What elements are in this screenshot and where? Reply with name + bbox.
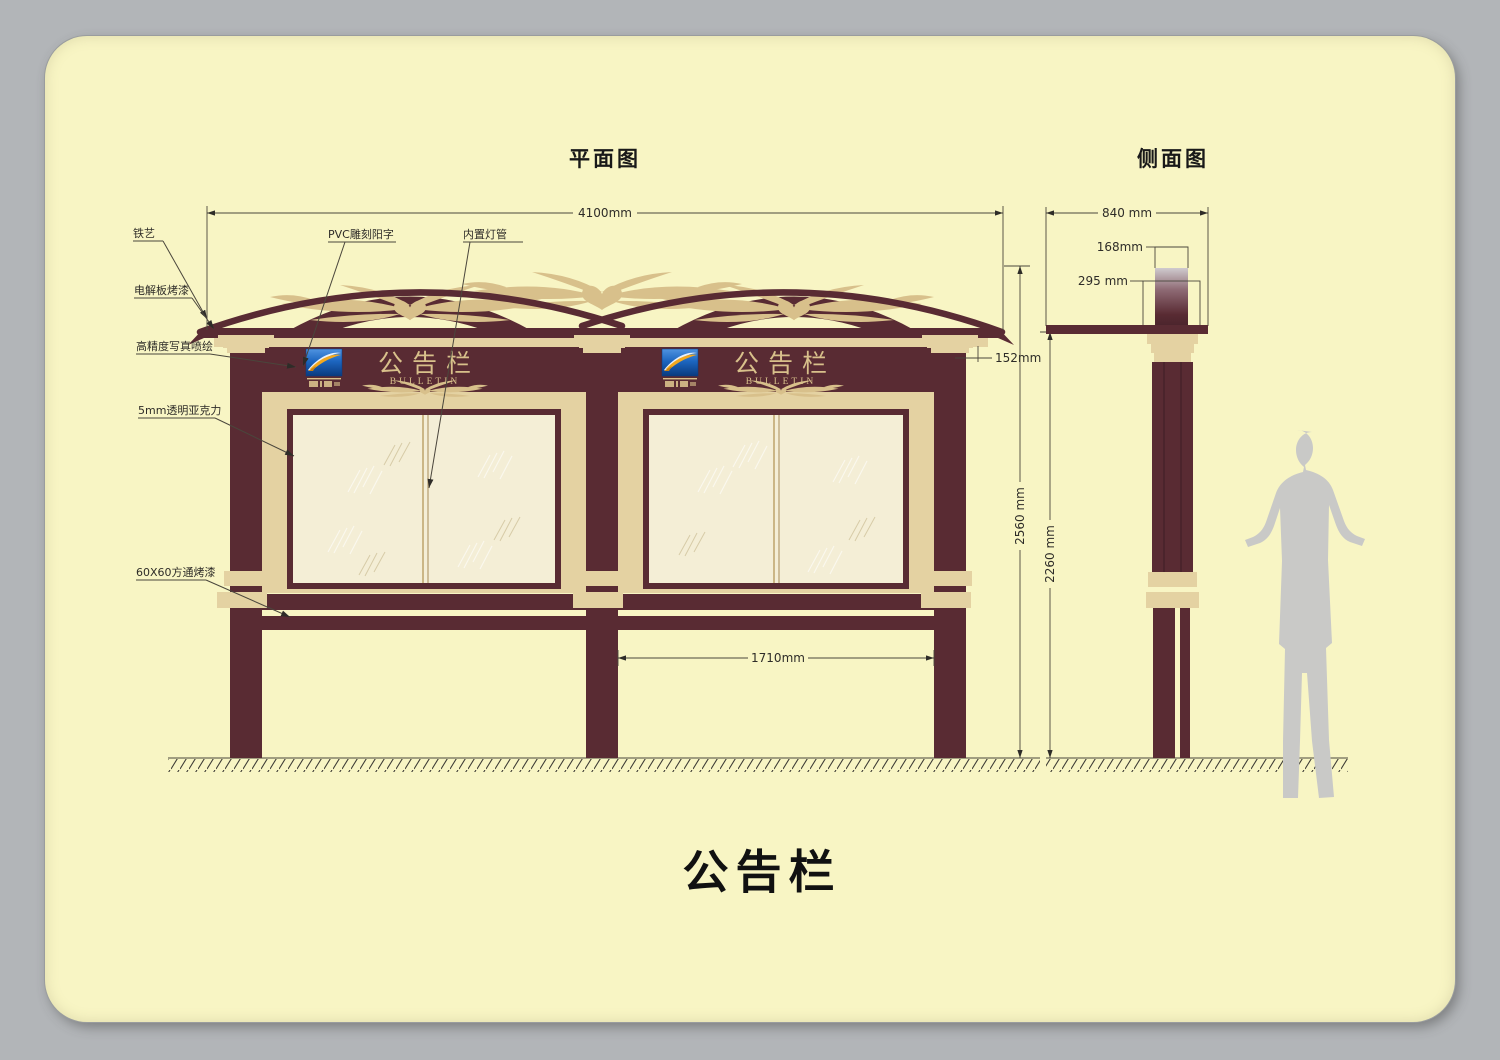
sheet-caption: 公告栏 — [683, 845, 842, 899]
human-silhouette — [1245, 430, 1365, 798]
dim-overall-height: 2560 mm — [1013, 487, 1027, 545]
svg-text:5mm透明亚克力: 5mm透明亚克力 — [138, 404, 221, 417]
dim-header-height: 152mm — [995, 351, 1041, 365]
side-view-title: 侧面图 — [1137, 147, 1209, 171]
board-title-cn: 公告栏 — [378, 350, 480, 378]
side-capital — [1147, 334, 1198, 362]
svg-text:60X60方通烤漆: 60X60方通烤漆 — [136, 565, 216, 579]
svg-text:PVC雕刻阳字: PVC雕刻阳字 — [328, 227, 394, 241]
front-view: 公告栏 BULLETIN 公告栏 BULLETIN — [168, 272, 1040, 772]
callout-iron-art: 铁艺 — [133, 227, 207, 319]
cabinet-right — [618, 392, 934, 593]
dim-post-height: 2260 mm — [1043, 525, 1057, 583]
column-center — [586, 350, 618, 758]
front-view-title: 平面图 — [569, 147, 641, 171]
side-view: 840 mm 168mm 295 mm — [1046, 206, 1365, 798]
cabinet-left — [262, 392, 586, 593]
dim-side-width: 840 mm — [1102, 206, 1152, 220]
bulletin-board-drawing: 平面图 侧面图 — [0, 0, 1500, 1060]
svg-text:高精度写真喷绘: 高精度写真喷绘 — [136, 339, 213, 353]
dim-cap-height: 295 mm — [1078, 274, 1128, 288]
side-post — [1146, 362, 1199, 758]
svg-text:铁艺: 铁艺 — [133, 227, 155, 240]
dim-leg-spacing: 1710mm — [751, 651, 805, 665]
svg-text:内置灯管: 内置灯管 — [463, 227, 507, 241]
svg-text:电解板烤漆: 电解板烤漆 — [134, 283, 189, 297]
column-left — [230, 350, 262, 758]
board-title-cn: 公告栏 — [734, 350, 836, 378]
ground-line — [168, 758, 1040, 772]
column-right — [934, 350, 966, 758]
cross-bar — [230, 616, 966, 630]
cabinet-edge-profile — [1155, 268, 1188, 330]
callout-electro-plate: 电解板烤漆 — [134, 283, 214, 329]
side-roof-slab — [1046, 325, 1208, 334]
dim-total-width: 4100mm — [578, 206, 632, 220]
dim-cap-depth: 168mm — [1097, 240, 1143, 254]
acrylic-window-right — [649, 415, 903, 583]
